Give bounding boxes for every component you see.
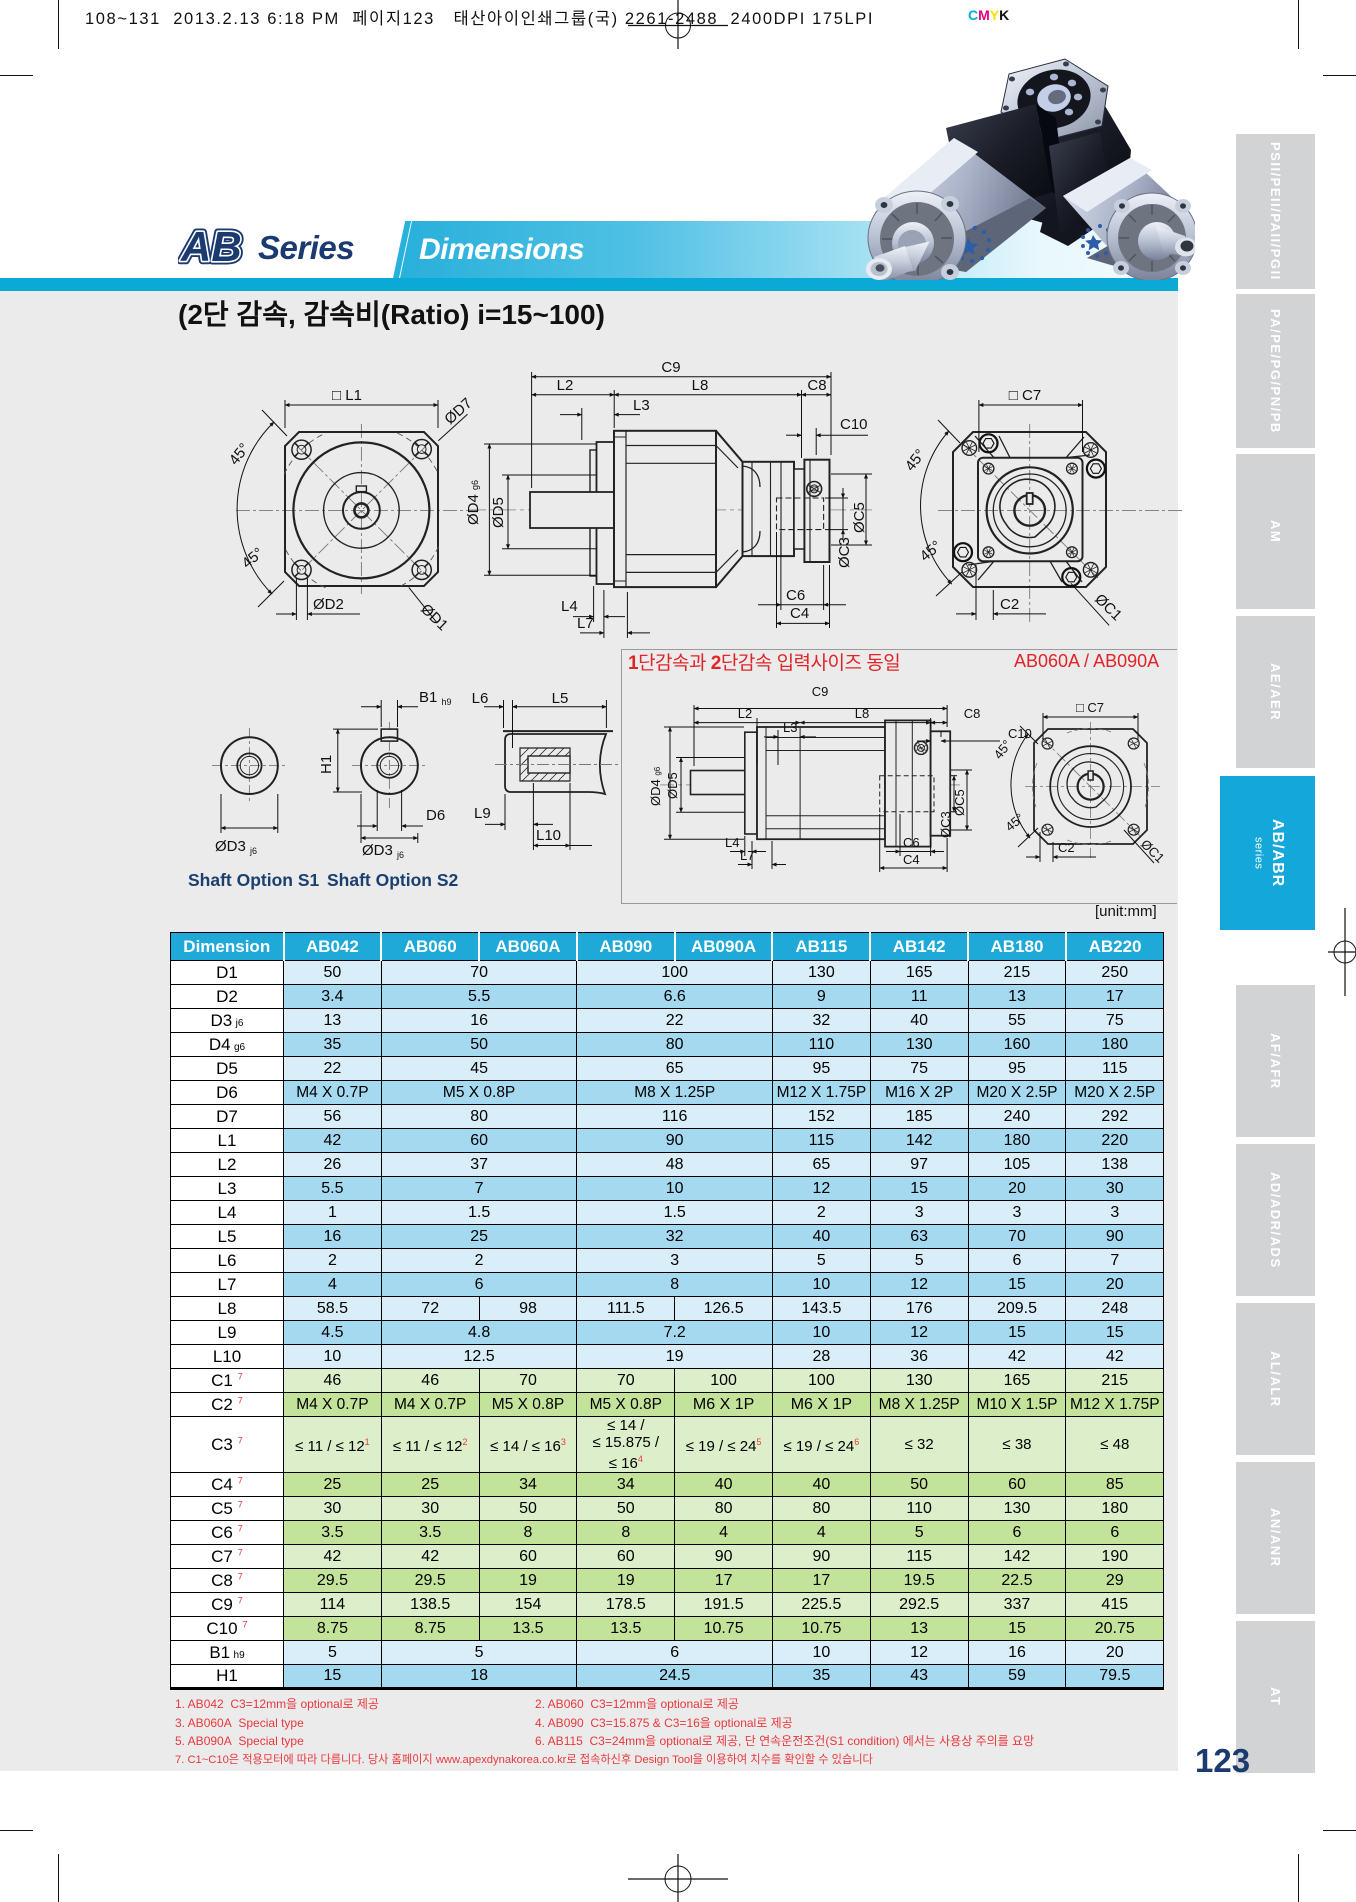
svg-text:C10: C10 [840, 416, 868, 433]
svg-text:L8: L8 [855, 706, 869, 721]
svg-text:ØD4 g6: ØD4 g6 [648, 766, 663, 806]
svg-text:C2: C2 [1058, 840, 1075, 855]
svg-text:L7: L7 [577, 615, 594, 632]
svg-text:L2: L2 [738, 706, 752, 721]
svg-text:L4: L4 [725, 835, 739, 850]
svg-text:C4: C4 [903, 852, 920, 867]
svg-text:ØC1: ØC1 [1138, 836, 1168, 865]
svg-text:L9: L9 [474, 805, 491, 822]
svg-text:ØD4 g6: ØD4 g6 [465, 480, 482, 525]
svg-text:C8: C8 [964, 706, 981, 721]
svg-text:C9: C9 [812, 684, 829, 699]
svg-text:□ C7: □ C7 [1076, 700, 1104, 715]
svg-text:□ L1: □ L1 [332, 387, 362, 404]
svg-text:AB: AB [180, 223, 242, 270]
svg-text:H1: H1 [318, 755, 335, 774]
svg-text:L3: L3 [783, 720, 797, 735]
svg-text:B1 h9: B1 h9 [419, 689, 452, 707]
svg-text:45°: 45° [1002, 810, 1027, 834]
svg-text:ØD1: ØD1 [417, 601, 451, 635]
svg-text:ØD5: ØD5 [665, 772, 680, 799]
svg-text:ØC3: ØC3 [836, 537, 853, 568]
svg-text:D6: D6 [426, 807, 445, 824]
svg-text:ØD5: ØD5 [490, 497, 507, 528]
svg-text:45°: 45° [917, 537, 945, 565]
svg-text:45°: 45° [239, 544, 267, 572]
svg-text:C2: C2 [1000, 596, 1019, 613]
svg-text:ØC3: ØC3 [938, 811, 953, 838]
svg-text:ØD3 j6: ØD3 j6 [362, 842, 404, 860]
svg-text:C10: C10 [1008, 726, 1032, 741]
svg-text:□ C7: □ C7 [1009, 387, 1041, 404]
svg-text:C8: C8 [807, 377, 826, 394]
svg-text:L2: L2 [557, 377, 574, 394]
svg-text:L10: L10 [536, 827, 561, 844]
svg-text:Shaft Option S1: Shaft Option S1 [188, 870, 320, 890]
svg-text:ØD3 j6: ØD3 j6 [215, 838, 257, 856]
svg-text:L3: L3 [633, 397, 650, 414]
svg-text:C6: C6 [786, 587, 805, 604]
svg-text:45°: 45° [905, 446, 929, 474]
svg-text:L8: L8 [692, 377, 709, 394]
svg-text:C9: C9 [661, 360, 680, 376]
svg-text:C6: C6 [903, 835, 920, 850]
svg-text:L6: L6 [472, 690, 489, 707]
svg-text:L5: L5 [552, 690, 569, 707]
svg-text:Shaft Option S2: Shaft Option S2 [327, 870, 459, 890]
svg-text:ØC5: ØC5 [851, 502, 868, 533]
svg-text:45°: 45° [230, 440, 253, 468]
svg-text:ØC1: ØC1 [1091, 591, 1125, 625]
svg-text:L7: L7 [740, 848, 754, 863]
svg-text:ØD2: ØD2 [313, 596, 344, 613]
svg-text:C4: C4 [790, 605, 809, 622]
svg-text:L4: L4 [561, 598, 578, 615]
